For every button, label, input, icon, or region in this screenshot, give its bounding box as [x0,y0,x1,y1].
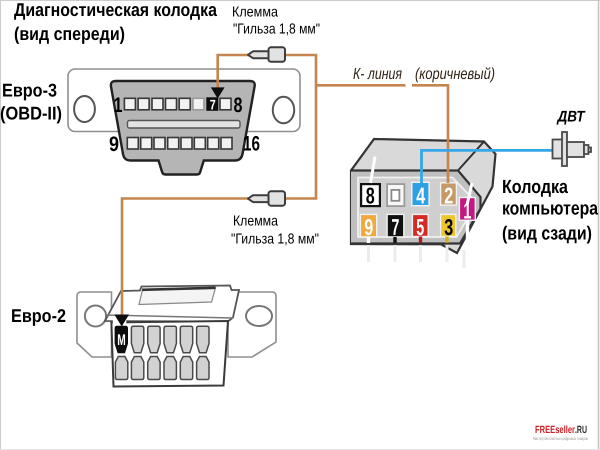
svg-text:1: 1 [114,94,123,117]
svg-text:8: 8 [366,183,375,209]
svg-text:4: 4 [416,182,425,208]
svg-text:(вид сзади): (вид сзади) [502,224,592,245]
svg-text:Диагностическая колодка: Диагностическая колодка [14,0,218,20]
svg-text:2: 2 [444,182,453,208]
svg-text:"Гильза 1,8 мм": "Гильза 1,8 мм" [231,232,319,248]
svg-text:9: 9 [364,214,373,240]
svg-text:Клемма: Клемма [233,214,279,230]
svg-text:Мастер бесплатных цифровых тов: Мастер бесплатных цифровых товаров [533,436,588,441]
svg-text:Колодка: Колодка [502,177,568,198]
svg-text:Клемма: Клемма [232,5,279,21]
svg-text:7: 7 [210,96,216,112]
svg-text:.RU: .RU [575,424,587,436]
svg-text:16: 16 [243,133,260,156]
svg-text:8: 8 [234,94,243,117]
svg-text:компьютера: компьютера [502,199,598,220]
svg-text:ДВТ: ДВТ [556,109,586,126]
svg-text:7: 7 [391,214,399,240]
svg-text:M: M [117,332,126,349]
svg-text:К- линия: К- линия [353,66,402,83]
svg-text:(коричневый): (коричневый) [415,66,495,83]
svg-text:Евро-3: Евро-3 [2,80,57,101]
svg-text:"Гильза 1,8 мм": "Гильза 1,8 мм" [233,22,320,38]
svg-text:3: 3 [444,214,453,240]
svg-text:Евро-2: Евро-2 [11,305,66,326]
svg-text:FREEseller: FREEseller [535,424,575,436]
svg-text:9: 9 [109,133,119,156]
svg-text:(вид спереди): (вид спереди) [14,23,125,44]
svg-text:(OBD-II): (OBD-II) [0,103,62,124]
svg-text:5: 5 [416,214,424,240]
